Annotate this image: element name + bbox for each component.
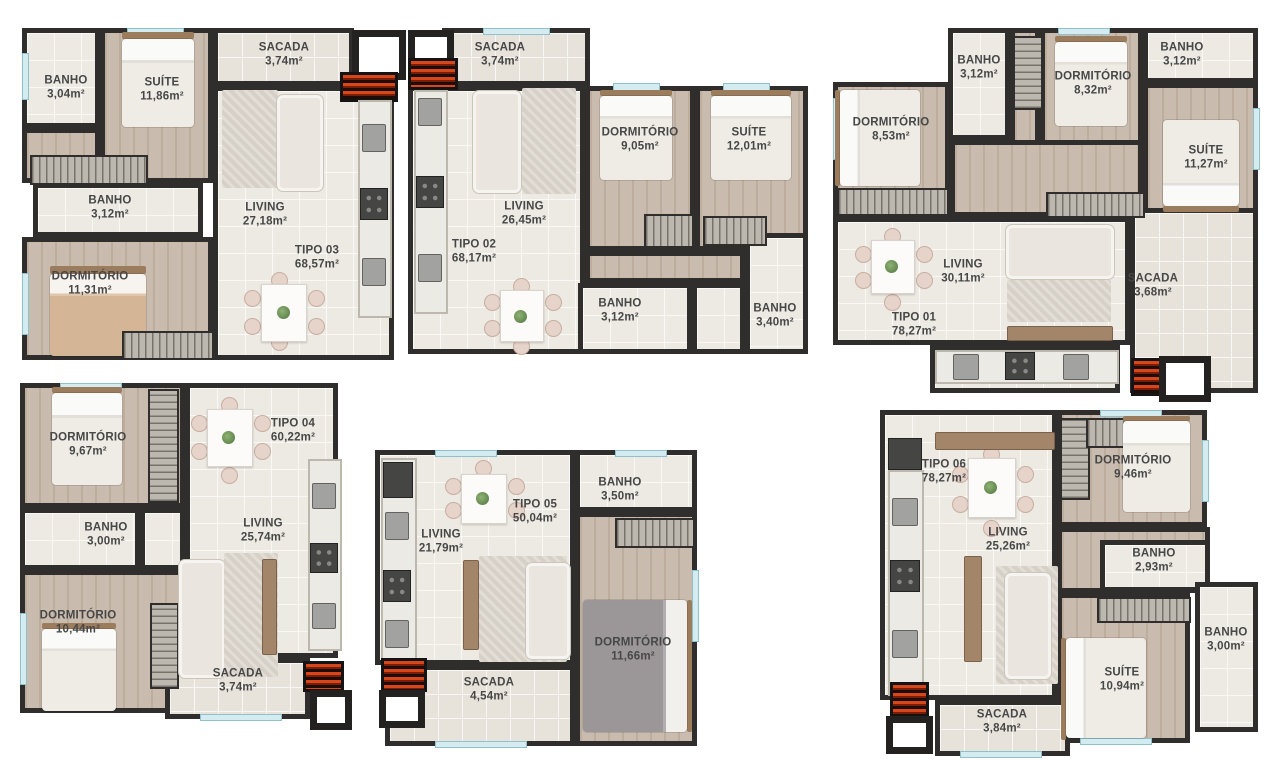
room-label: BANHO3,50m² (598, 476, 641, 505)
plant-icon (277, 306, 290, 319)
cooktop-icon (418, 254, 442, 282)
unit-area: 78,27m² (922, 472, 966, 486)
room-name: DORMITÓRIO (50, 431, 127, 445)
room-area: 8,32m² (1055, 84, 1132, 98)
room-area: 10,94m² (1100, 680, 1144, 694)
fridge-icon (383, 462, 413, 498)
room-name: DORMITÓRIO (853, 116, 930, 130)
chair-icon (545, 294, 562, 311)
room-name: DORMITÓRIO (40, 609, 117, 623)
room-name: DORMITÓRIO (595, 636, 672, 650)
room-area: 25,74m² (241, 531, 285, 545)
chair-icon (545, 320, 562, 337)
room-label: DORMITÓRIO9,67m² (50, 431, 127, 460)
bed (583, 600, 687, 732)
window (22, 53, 29, 100)
room-area: 3,40m² (753, 316, 796, 330)
unit-name: TIPO 01 (892, 311, 936, 325)
window (1080, 738, 1152, 745)
sofa (525, 562, 571, 660)
room-label: BANHO2,93m² (1132, 547, 1175, 576)
room-label: BANHO3,12m² (1160, 41, 1203, 70)
sofa (178, 559, 226, 679)
room-label: DORMITÓRIO8,53m² (853, 116, 930, 145)
unit-name: TIPO 05 (513, 498, 557, 512)
room-label: LIVING27,18m² (243, 201, 287, 230)
room-name: BANHO (44, 74, 87, 88)
chair-icon (244, 290, 261, 307)
chair-icon (308, 290, 325, 307)
stove-icon (416, 176, 444, 208)
plant-icon (222, 431, 235, 444)
room-label: SACADA3,74m² (213, 667, 263, 696)
stove-icon (383, 570, 411, 602)
cooktop-icon (892, 630, 918, 658)
rug (1007, 280, 1111, 322)
room-name: LIVING (941, 258, 985, 272)
room-area: 3,00m² (84, 535, 127, 549)
chair-icon (1017, 496, 1034, 513)
room-area: 9,05m² (602, 140, 679, 154)
room-area: 12,01m² (727, 140, 771, 154)
room-label: BANHO3,00m² (1204, 626, 1247, 655)
headboard (687, 600, 692, 732)
grill-icon (303, 661, 344, 692)
unit-name: TIPO 02 (452, 238, 496, 252)
chair-icon (855, 246, 872, 263)
chair-icon (855, 272, 872, 289)
sink-icon (418, 98, 442, 126)
room-banho-2 (1195, 582, 1258, 732)
unit-name: TIPO 06 (922, 458, 966, 472)
window (615, 450, 667, 457)
room-label: LIVING21,79m² (419, 528, 463, 557)
window (1202, 440, 1209, 502)
room-name: SACADA (259, 41, 309, 55)
room-area: 11,66m² (595, 650, 672, 664)
wardrobe (148, 389, 179, 503)
room-name: SACADA (1128, 272, 1178, 286)
room-area: 3,00m² (1204, 640, 1247, 654)
service-box (379, 690, 425, 728)
tv-sideboard (262, 559, 277, 655)
room-area: 30,11m² (941, 272, 985, 286)
chair-icon (1017, 466, 1034, 483)
hall (585, 251, 745, 283)
tv-sideboard (1007, 326, 1113, 341)
unit-title: TIPO 0678,27m² (922, 458, 966, 487)
room-label: LIVING25,74m² (241, 517, 285, 546)
room-label: BANHO3,40m² (753, 302, 796, 331)
room-label: LIVING26,45m² (502, 200, 546, 229)
room-name: SUÍTE (140, 76, 184, 90)
room-name: DORMITÓRIO (1055, 70, 1132, 84)
unit-title: TIPO 0368,57m² (295, 244, 339, 273)
chair-icon (244, 318, 261, 335)
wardrobe (615, 518, 695, 548)
wardrobe (703, 216, 767, 246)
window (960, 751, 1042, 758)
grill-icon (408, 58, 458, 90)
service-box (310, 690, 352, 730)
cooktop-icon (1063, 354, 1089, 380)
unit-name: TIPO 03 (295, 244, 339, 258)
chair-icon (884, 294, 901, 311)
room-name: SUÍTE (727, 126, 771, 140)
floorplan-tipo-03: BANHO3,04m² SUÍTE11,86m² SACADA3,74m² LI… (22, 28, 394, 360)
unit-title: TIPO 0178,27m² (892, 311, 936, 340)
room-area: 26,45m² (502, 214, 546, 228)
sofa (472, 90, 522, 194)
room-area: 4,54m² (464, 690, 514, 704)
room-name: SUÍTE (1184, 144, 1228, 158)
room-name: SUÍTE (1100, 666, 1144, 680)
grill-icon (381, 658, 427, 692)
rug (222, 90, 278, 188)
sink-icon (385, 512, 409, 540)
room-name: DORMITÓRIO (602, 126, 679, 140)
sofa (276, 94, 324, 192)
stove-icon (310, 543, 338, 573)
room-label: SACADA3,74m² (259, 41, 309, 70)
room-name: DORMITÓRIO (52, 270, 129, 284)
room-area: 2,93m² (1132, 561, 1175, 575)
room-label: BANHO3,12m² (88, 194, 131, 223)
window (20, 613, 27, 685)
room-name: BANHO (598, 297, 641, 311)
service-box (1159, 356, 1211, 402)
sink-icon (953, 354, 979, 380)
room-label: SACADA3,74m² (475, 41, 525, 70)
room-label: DORMITÓRIO10,44m² (40, 609, 117, 638)
chair-icon (445, 478, 462, 495)
unit-area: 68,17m² (452, 252, 496, 266)
room-area: 25,26m² (986, 540, 1030, 554)
cooktop-icon (362, 258, 386, 286)
floorplan-tipo-02: SACADA3,74m² LIVING26,45m² TIPO 0268,17m… (408, 28, 808, 354)
window (1058, 28, 1110, 35)
room-area: 8,53m² (853, 130, 930, 144)
service-box (886, 716, 933, 754)
room-name: SACADA (475, 41, 525, 55)
room-label: DORMITÓRIO8,32m² (1055, 70, 1132, 99)
stove-icon (360, 188, 388, 220)
room-area: 10,44m² (40, 623, 117, 637)
room-label: DORMITÓRIO11,66m² (595, 636, 672, 665)
sink-icon (362, 124, 386, 152)
room-name: LIVING (502, 200, 546, 214)
sink-icon (892, 498, 918, 526)
unit-area: 60,22m² (271, 431, 315, 445)
room-label: DORMITÓRIO11,31m² (52, 270, 129, 299)
chair-icon (916, 246, 933, 263)
floorplan-tipo-04: DORMITÓRIO9,67m² TIPO 0460,22m² BANHO3,0… (20, 383, 338, 719)
window (435, 450, 497, 457)
room-area: 3,68m² (1128, 286, 1178, 300)
room-area: 3,84m² (977, 722, 1027, 736)
room-label: SACADA3,84m² (977, 708, 1027, 737)
window (692, 570, 699, 642)
room-label: BANHO3,00m² (84, 521, 127, 550)
room-label: DORMITÓRIO9,05m² (602, 126, 679, 155)
wardrobe (1097, 597, 1191, 623)
window (200, 714, 282, 721)
room-label: BANHO3,12m² (598, 297, 641, 326)
chair-icon (221, 467, 238, 484)
room-name: BANHO (1160, 41, 1203, 55)
sofa (1005, 224, 1115, 280)
room-name: BANHO (1132, 547, 1175, 561)
floorplans-sheet: BANHO3,04m² SUÍTE11,86m² SACADA3,74m² LI… (0, 0, 1280, 760)
room-area: 3,12m² (957, 68, 1000, 82)
room-area: 9,46m² (1095, 468, 1172, 482)
room-name: BANHO (88, 194, 131, 208)
room-name: BANHO (957, 54, 1000, 68)
room-area: 3,12m² (1160, 55, 1203, 69)
floorplan-tipo-05: TIPO 0550,04m² BANHO3,50m² LIVING21,79m²… (375, 450, 697, 746)
wardrobe (30, 155, 148, 185)
cooktop-icon (385, 620, 409, 648)
sink-icon (312, 483, 336, 509)
room-area: 3,12m² (88, 208, 131, 222)
wardrobe (644, 214, 694, 248)
room-label: SUÍTE10,94m² (1100, 666, 1144, 695)
chair-icon (191, 415, 208, 432)
window (1253, 108, 1260, 170)
room-label: BANHO3,04m² (44, 74, 87, 103)
room-label: SUÍTE11,27m² (1184, 144, 1228, 173)
chair-icon (508, 478, 525, 495)
room-label: LIVING30,11m² (941, 258, 985, 287)
sideboard (935, 432, 1055, 450)
tv-panel (964, 556, 982, 662)
room-name: BANHO (1204, 626, 1247, 640)
unit-title: TIPO 0268,17m² (452, 238, 496, 267)
fridge-icon (888, 438, 922, 470)
unit-name: TIPO 04 (271, 417, 315, 431)
room-area: 9,67m² (50, 445, 127, 459)
unit-area: 68,57m² (295, 258, 339, 272)
hall-2 (692, 283, 745, 354)
room-label: SUÍTE11,86m² (140, 76, 184, 105)
cooktop-icon (312, 603, 336, 629)
room-label: DORMITÓRIO9,46m² (1095, 454, 1172, 483)
grill-icon (890, 682, 929, 718)
room-area: 3,74m² (259, 55, 309, 69)
bed (42, 629, 116, 711)
chair-icon (254, 443, 271, 460)
chair-icon (484, 320, 501, 337)
room-label: SACADA3,68m² (1128, 272, 1178, 301)
floorplan-tipo-01: BANHO3,12m² DORMITÓRIO8,32m² BANHO3,12m²… (833, 28, 1258, 393)
room-area: 3,74m² (475, 55, 525, 69)
hall (140, 508, 185, 570)
room-area: 11,31m² (52, 284, 129, 298)
wardrobe (837, 188, 949, 216)
room-name: BANHO (753, 302, 796, 316)
rug (522, 88, 576, 194)
stove-icon (890, 560, 920, 592)
room-banho-2 (745, 233, 808, 354)
chair-icon (484, 294, 501, 311)
tv-sideboard (463, 560, 479, 650)
wardrobe (1013, 36, 1043, 110)
chair-icon (916, 272, 933, 289)
plant-icon (984, 481, 997, 494)
window (483, 28, 550, 35)
wardrobe (122, 331, 214, 360)
unit-area: 50,04m² (513, 512, 557, 526)
room-area: 11,86m² (140, 90, 184, 104)
wardrobe (150, 603, 179, 689)
unit-title: TIPO 0550,04m² (513, 498, 557, 527)
unit-title: TIPO 0460,22m² (271, 417, 315, 446)
headboard (1163, 206, 1239, 212)
chair-icon (191, 443, 208, 460)
room-name: LIVING (419, 528, 463, 542)
room-area: 27,18m² (243, 215, 287, 229)
room-label: BANHO3,12m² (957, 54, 1000, 83)
room-name: SACADA (213, 667, 263, 681)
chair-icon (445, 502, 462, 519)
room-name: DORMITÓRIO (1095, 454, 1172, 468)
room-area: 3,74m² (213, 681, 263, 695)
sofa (1004, 572, 1052, 680)
chair-icon (254, 415, 271, 432)
room-name: SACADA (464, 676, 514, 690)
plant-icon (514, 310, 527, 323)
room-name: BANHO (84, 521, 127, 535)
room-area: 3,04m² (44, 88, 87, 102)
room-name: BANHO (598, 476, 641, 490)
unit-area: 78,27m² (892, 325, 936, 339)
room-area: 3,12m² (598, 311, 641, 325)
room-label: LIVING25,26m² (986, 526, 1030, 555)
room-area: 21,79m² (419, 542, 463, 556)
room-name: SACADA (977, 708, 1027, 722)
room-label: SACADA4,54m² (464, 676, 514, 705)
window (435, 741, 527, 748)
floorplan-tipo-06: TIPO 0678,27m² DORMITÓRIO9,46m² LIVING25… (880, 410, 1258, 756)
grill-icon (1131, 358, 1162, 396)
room-name: LIVING (986, 526, 1030, 540)
stove-icon (1005, 352, 1035, 380)
room-area: 11,27m² (1184, 158, 1228, 172)
wardrobe (1046, 192, 1145, 218)
room-name: LIVING (243, 201, 287, 215)
room-name: LIVING (241, 517, 285, 531)
headboard (122, 32, 194, 39)
window (22, 273, 29, 335)
room-area: 3,50m² (598, 490, 641, 504)
plant-icon (476, 492, 489, 505)
grill-icon (340, 72, 398, 102)
chair-icon (308, 318, 325, 335)
room-banho-1 (948, 28, 1010, 140)
room-label: SUÍTE12,01m² (727, 126, 771, 155)
chair-icon (952, 496, 969, 513)
plant-icon (885, 260, 898, 273)
